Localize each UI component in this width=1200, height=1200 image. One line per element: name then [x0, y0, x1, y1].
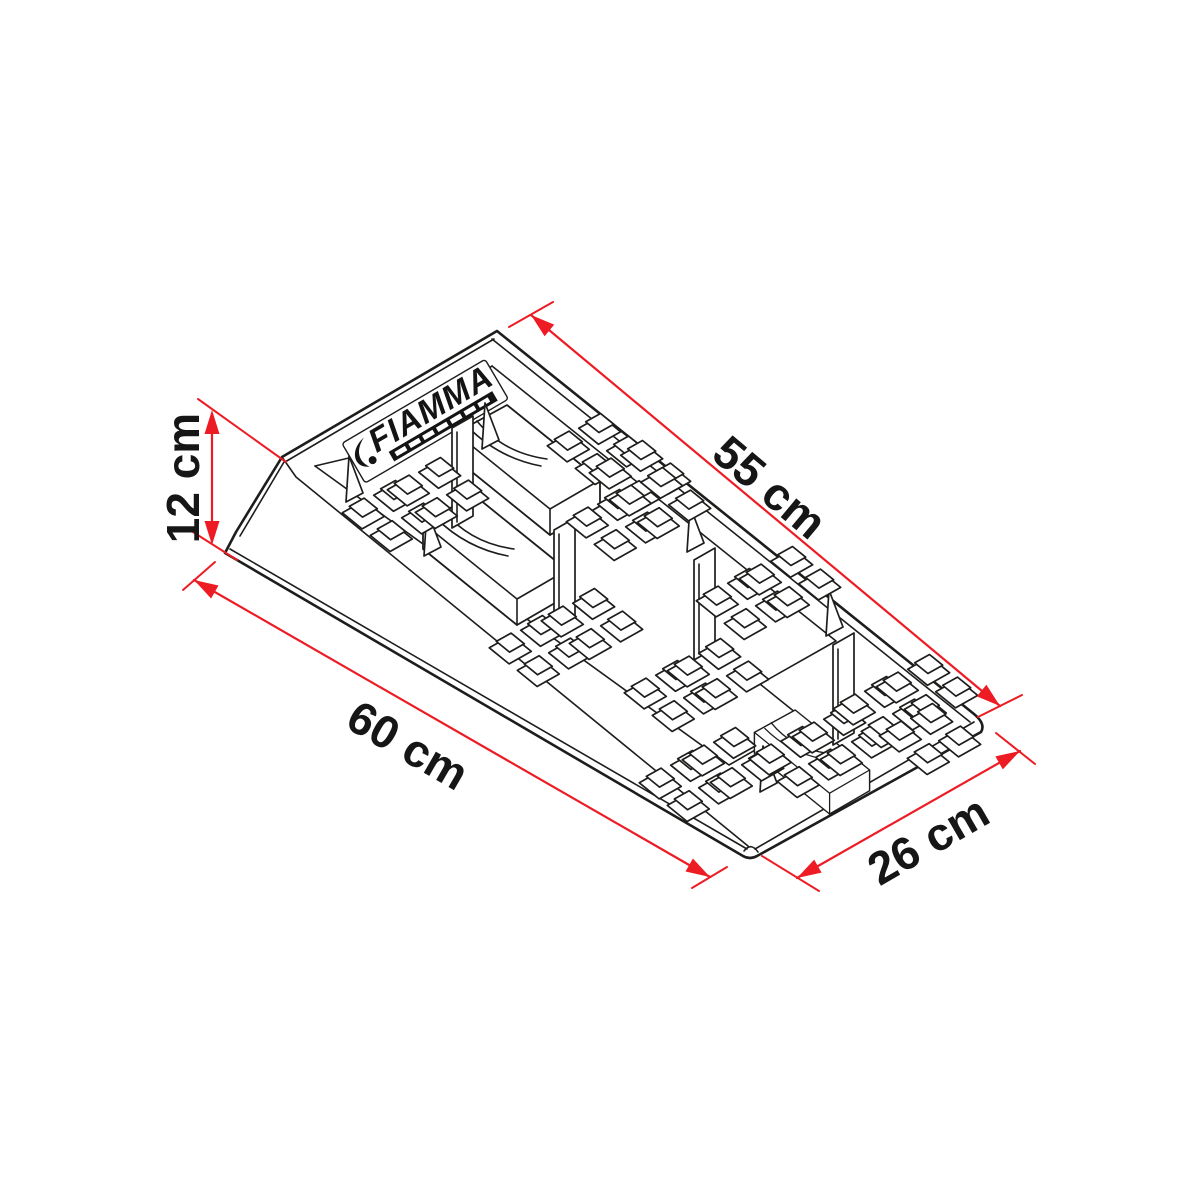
diagram-canvas: FIAMMA: [0, 0, 1200, 1200]
product-diagram: FIAMMA: [0, 0, 1200, 1200]
dimension-width-label: 26 cm: [859, 785, 998, 895]
dimension-height-label: 12 cm: [157, 413, 209, 543]
dimension-base-length-label: 60 cm: [338, 690, 477, 800]
ramp-body: FIAMMA: [225, 331, 982, 858]
